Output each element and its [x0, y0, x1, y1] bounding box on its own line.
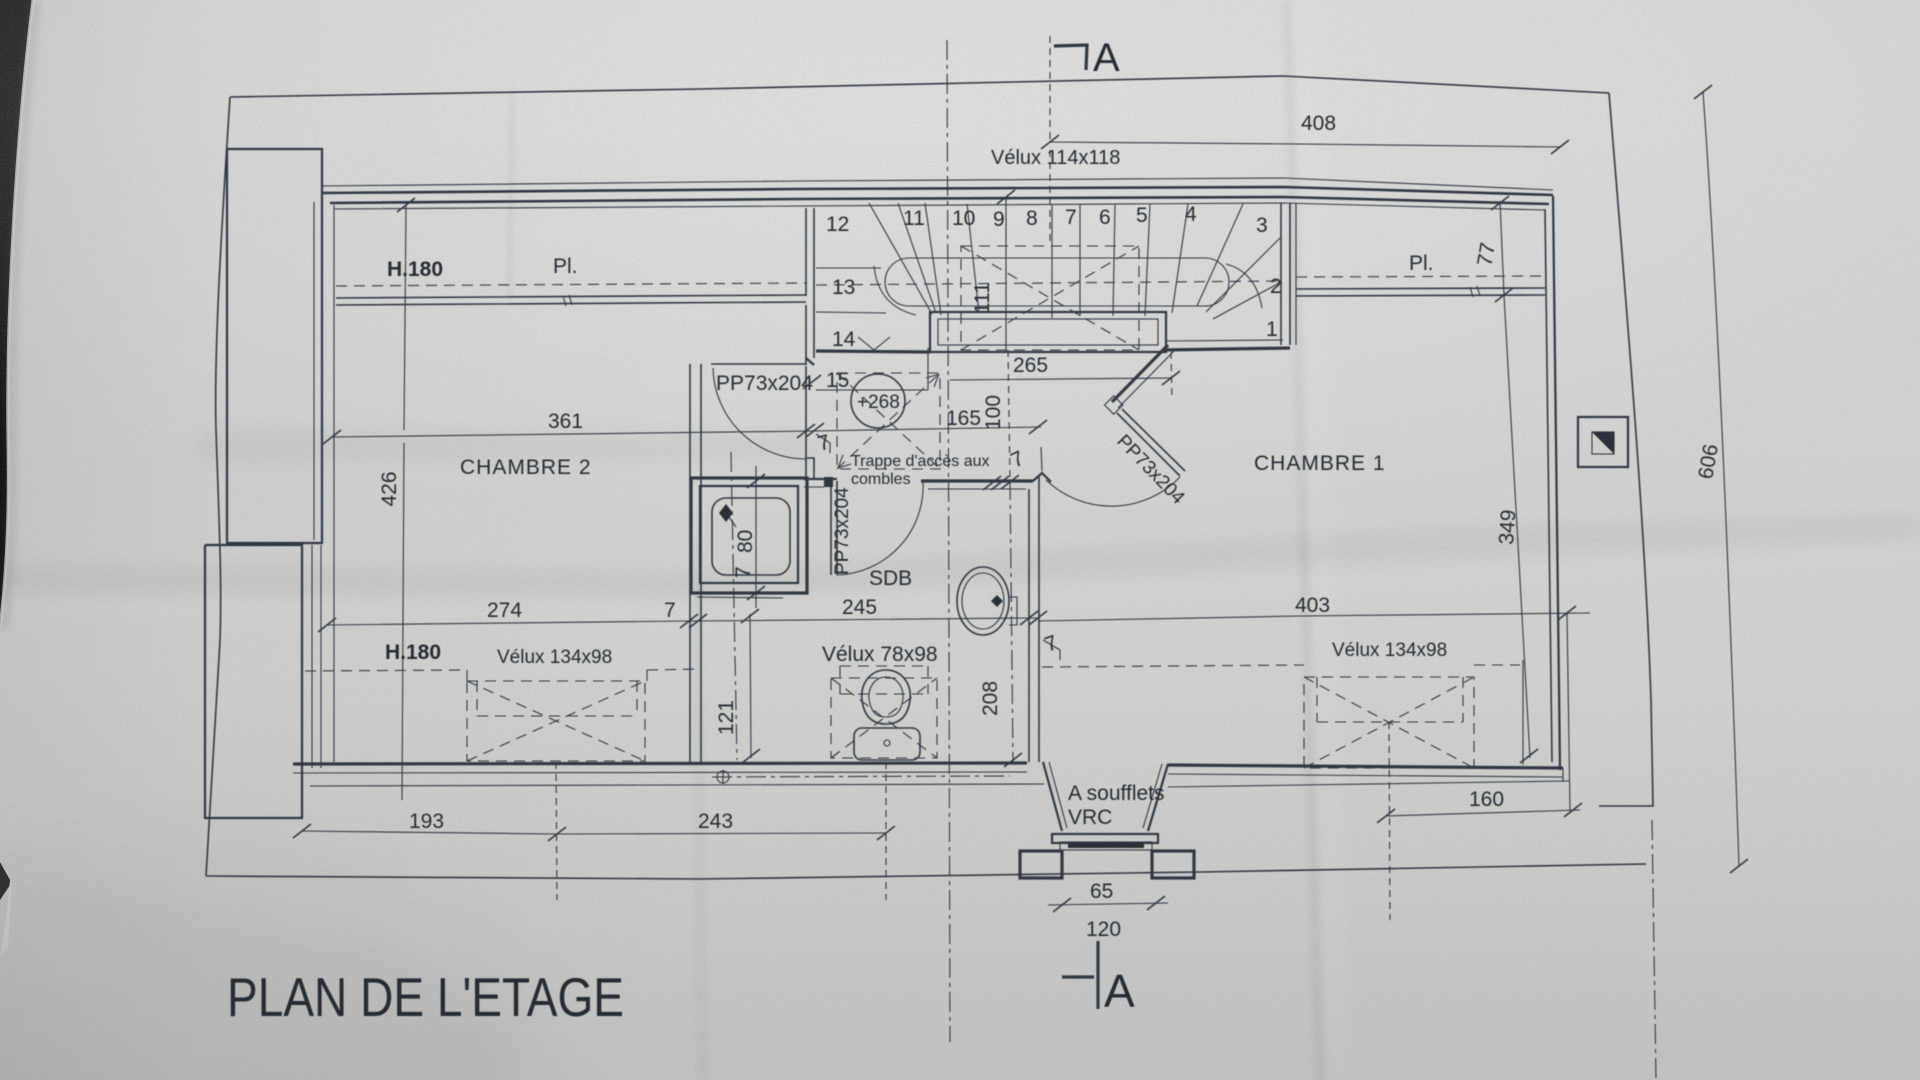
svg-text:426: 426 — [378, 471, 401, 506]
svg-text:CHAMBRE 1: CHAMBRE 1 — [1254, 452, 1386, 475]
svg-text:+268: +268 — [857, 392, 900, 413]
svg-text:165: 165 — [946, 407, 981, 430]
svg-text:208: 208 — [979, 681, 1002, 716]
svg-text:11: 11 — [903, 207, 925, 230]
svg-text:VRC: VRC — [1068, 806, 1112, 829]
svg-text:SDB: SDB — [869, 567, 912, 590]
svg-text:121: 121 — [715, 700, 738, 735]
svg-text:403: 403 — [1295, 594, 1330, 617]
svg-text:120: 120 — [1086, 918, 1121, 941]
svg-text:15: 15 — [826, 369, 849, 392]
svg-text:408: 408 — [1301, 112, 1336, 135]
svg-text:243: 243 — [698, 810, 733, 833]
svg-text:1: 1 — [1266, 318, 1278, 341]
svg-text:A soufflets: A soufflets — [1068, 782, 1165, 805]
svg-text:Vélux 134x98: Vélux 134x98 — [497, 647, 612, 668]
svg-text:4: 4 — [1185, 203, 1197, 226]
svg-text:10: 10 — [952, 207, 975, 230]
svg-text:245: 245 — [842, 596, 877, 619]
svg-text:combles: combles — [851, 471, 911, 488]
svg-text:H.180: H.180 — [387, 258, 443, 281]
svg-text:7: 7 — [1065, 206, 1077, 229]
svg-text:Trappe d'accès aux: Trappe d'accès aux — [851, 453, 990, 470]
svg-text:A: A — [1104, 965, 1135, 1017]
svg-text:12: 12 — [826, 213, 849, 236]
svg-text:PLAN DE L'ETAGE: PLAN DE L'ETAGE — [227, 966, 624, 1028]
svg-text:160: 160 — [1469, 788, 1504, 811]
svg-text:111: 111 — [971, 282, 994, 314]
svg-text:9: 9 — [993, 208, 1005, 231]
svg-text:A: A — [1093, 36, 1120, 80]
svg-text:14: 14 — [832, 328, 856, 351]
svg-text:7: 7 — [732, 566, 755, 578]
svg-text:6: 6 — [1099, 206, 1111, 229]
svg-text:274: 274 — [487, 599, 522, 622]
svg-text:Vélux 78x98: Vélux 78x98 — [822, 643, 938, 666]
svg-text:Vélux 114x118: Vélux 114x118 — [991, 147, 1120, 169]
svg-text:7: 7 — [664, 599, 676, 622]
svg-text:80: 80 — [734, 530, 757, 553]
svg-text:2: 2 — [1270, 275, 1282, 298]
svg-text:CHAMBRE 2: CHAMBRE 2 — [460, 456, 592, 479]
svg-text:361: 361 — [548, 410, 583, 433]
svg-text:Pl.: Pl. — [1409, 252, 1434, 275]
svg-text:Pl.: Pl. — [553, 255, 578, 278]
svg-text:193: 193 — [409, 810, 444, 833]
svg-text:PP73x204: PP73x204 — [832, 487, 853, 575]
svg-text:65: 65 — [1090, 880, 1113, 903]
svg-text:3: 3 — [1256, 214, 1268, 237]
svg-text:100: 100 — [982, 395, 1005, 430]
svg-text:13: 13 — [832, 276, 855, 299]
svg-text:5: 5 — [1136, 204, 1148, 227]
svg-text:8: 8 — [1026, 207, 1038, 230]
svg-text:265: 265 — [1013, 354, 1048, 377]
svg-text:PP73x204: PP73x204 — [716, 372, 813, 395]
svg-text:Vélux 134x98: Vélux 134x98 — [1332, 640, 1447, 661]
svg-text:349: 349 — [1495, 509, 1520, 546]
svg-text:77: 77 — [1473, 241, 1500, 268]
svg-text:H.180: H.180 — [385, 641, 441, 664]
